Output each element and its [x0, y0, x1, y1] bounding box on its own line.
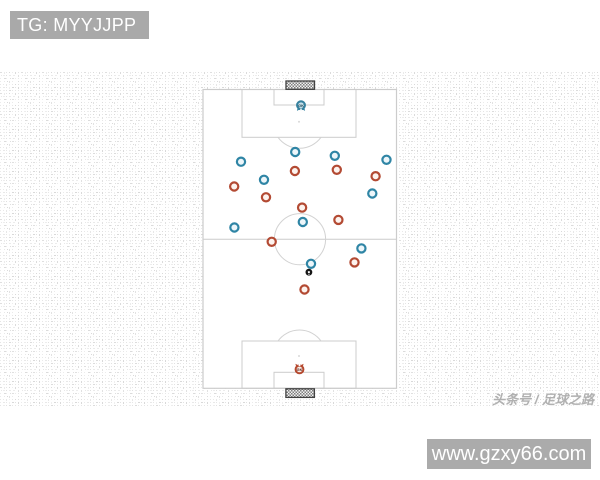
svg-text:GK: GK: [298, 104, 304, 108]
svg-text:GK: GK: [297, 368, 303, 372]
